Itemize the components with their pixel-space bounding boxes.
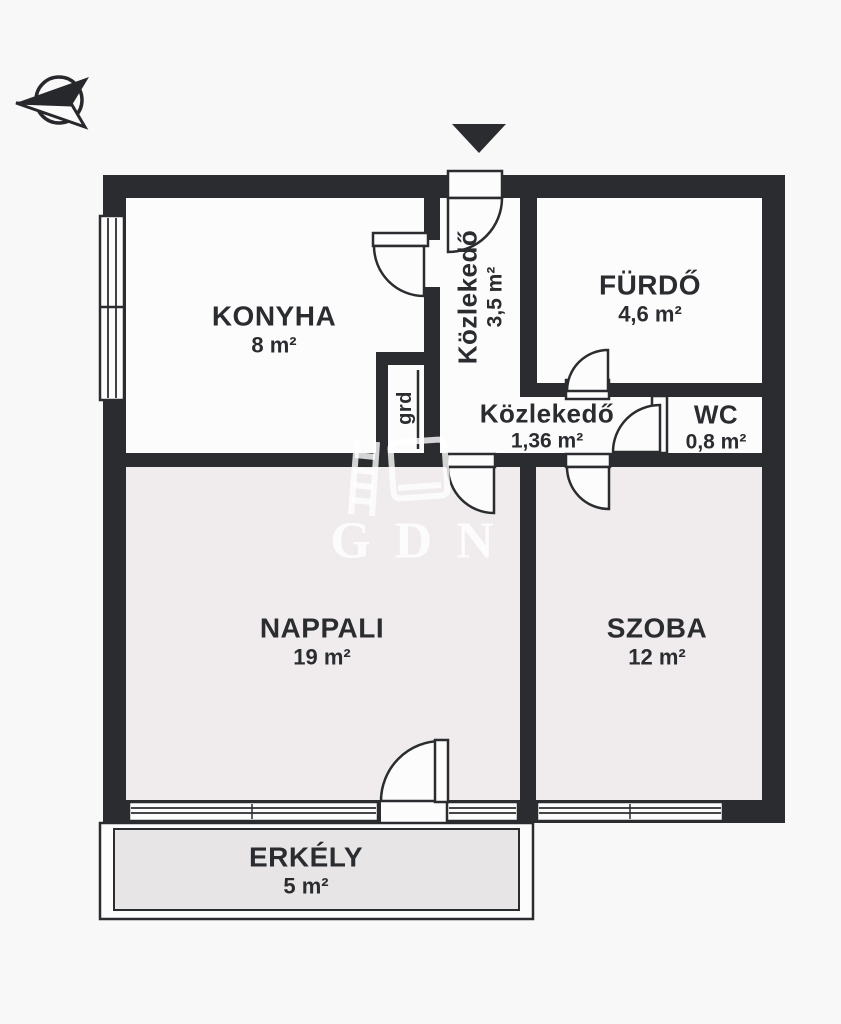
room-label-erkely: ERKÉLY 5 m² — [249, 841, 363, 900]
room-area: 5 m² — [249, 874, 363, 900]
room-name: ERKÉLY — [249, 841, 363, 874]
room-label-gardrob: grd — [394, 391, 418, 425]
room-label-wc: WC 0,8 m² — [686, 399, 747, 454]
bedroom-window — [537, 802, 723, 821]
room-label-nappali: NAPPALI 19 m² — [260, 612, 384, 671]
room-area: 12 m² — [607, 645, 708, 671]
room-name: grd — [394, 391, 418, 425]
room-area: 8 m² — [212, 333, 336, 359]
room-area: 1,36 m² — [480, 429, 615, 454]
room-name: NAPPALI — [260, 612, 384, 645]
room-name: Közlekedő — [480, 398, 615, 429]
room-area: 3,5 m² — [483, 230, 508, 365]
living-room-window — [129, 802, 378, 821]
room-label-furdo: FÜRDŐ 4,6 m² — [599, 269, 701, 328]
room-label-szoba: SZOBA 12 m² — [607, 612, 708, 671]
floor-plan: GDN KONYHA 8 m² Közlekedő 3,5 m² FÜRDŐ 4… — [0, 0, 841, 1024]
room-name: WC — [686, 399, 747, 430]
room-label-kozlekedo-vertical: Közlekedő 3,5 m² — [452, 230, 507, 365]
room-label-kozlekedo-horizontal: Közlekedő 1,36 m² — [480, 398, 615, 453]
kitchen-window — [100, 216, 124, 400]
room-name: KONYHA — [212, 300, 336, 333]
room-area: 4,6 m² — [599, 302, 701, 328]
room-name: Közlekedő — [452, 230, 483, 365]
entrance-arrow-icon — [452, 124, 506, 153]
living-room-window-right — [447, 802, 518, 821]
room-name: FÜRDŐ — [599, 269, 701, 302]
room-area: 0,8 m² — [686, 430, 747, 455]
room-area: 19 m² — [260, 645, 384, 671]
floor-plan-drawing — [0, 0, 841, 1024]
compass-icon — [16, 77, 89, 127]
room-name: SZOBA — [607, 612, 708, 645]
room-label-konyha: KONYHA 8 m² — [212, 300, 336, 359]
